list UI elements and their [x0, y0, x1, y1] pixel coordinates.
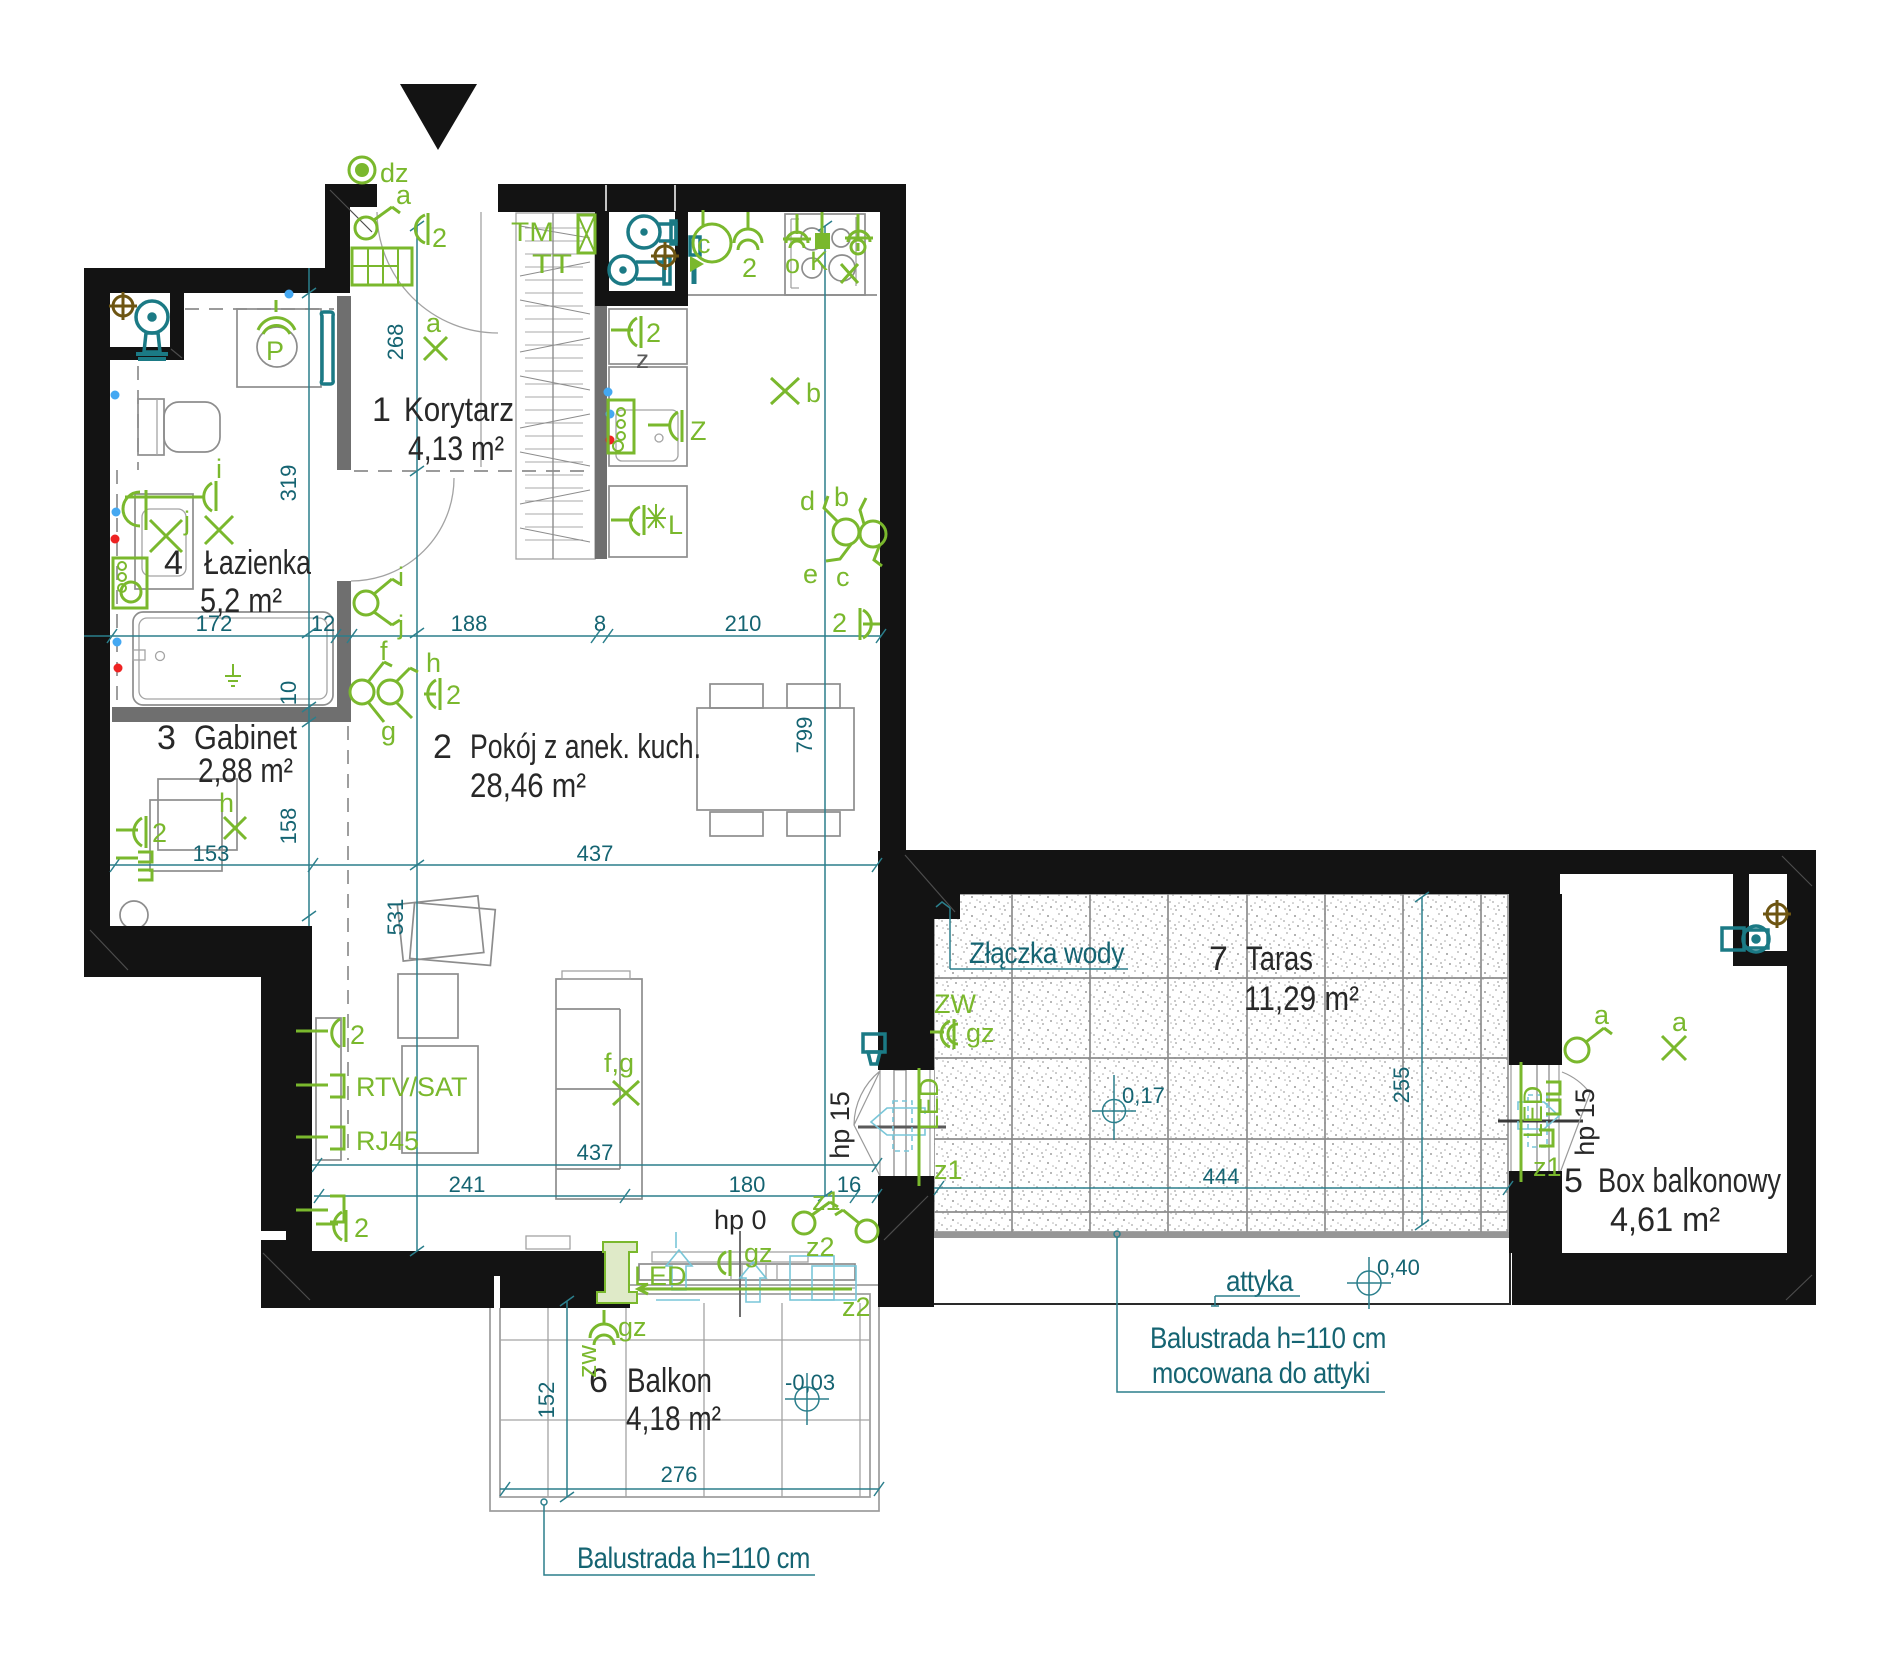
svg-text:j: j [397, 610, 404, 640]
svg-text:2: 2 [432, 223, 447, 253]
svg-text:f: f [380, 636, 388, 666]
svg-text:28,46 m²: 28,46 m² [470, 767, 586, 805]
svg-text:2: 2 [742, 253, 757, 283]
svg-text:Taras: Taras [1246, 940, 1313, 978]
svg-text:h: h [219, 788, 234, 818]
svg-text:L: L [668, 510, 683, 540]
svg-text:RJ45: RJ45 [356, 1126, 419, 1156]
svg-text:hp 15: hp 15 [1570, 1088, 1600, 1156]
svg-text:153: 153 [193, 841, 230, 866]
svg-text:gz: gz [744, 1238, 773, 1268]
svg-text:c: c [836, 562, 850, 592]
svg-text:12: 12 [311, 611, 335, 636]
svg-text:zw: zw [572, 1345, 602, 1379]
svg-text:210: 210 [725, 611, 762, 636]
svg-text:180: 180 [729, 1172, 766, 1197]
svg-text:Łazienka: Łazienka [204, 544, 311, 582]
svg-text:Balustrada h=110 cm: Balustrada h=110 cm [1150, 1322, 1386, 1355]
svg-text:P: P [266, 336, 284, 366]
svg-text:o: o [785, 249, 800, 279]
svg-text:z1: z1 [812, 1186, 841, 1216]
svg-text:c: c [697, 229, 711, 259]
svg-text:z1: z1 [934, 1155, 963, 1185]
svg-text:437: 437 [577, 1140, 614, 1165]
svg-text:j: j [183, 506, 190, 536]
svg-text:4,18 m²: 4,18 m² [626, 1400, 721, 1438]
svg-text:K: K [810, 246, 828, 276]
svg-text:799: 799 [792, 717, 817, 754]
svg-text:2: 2 [832, 608, 847, 638]
svg-text:a: a [1594, 1000, 1610, 1030]
svg-text:Złączka wody: Złączka wody [969, 937, 1124, 970]
svg-text:2: 2 [152, 818, 167, 848]
svg-text:2: 2 [350, 1020, 365, 1050]
svg-text:152: 152 [534, 1382, 559, 1419]
svg-text:a: a [426, 308, 442, 338]
svg-text:mocowana do attyki: mocowana do attyki [1152, 1357, 1370, 1390]
svg-text:Box balkonowy: Box balkonowy [1598, 1162, 1781, 1200]
svg-text:4,13 m²: 4,13 m² [408, 430, 504, 468]
svg-text:241: 241 [449, 1172, 486, 1197]
svg-text:3: 3 [157, 719, 176, 757]
svg-text:0,17: 0,17 [1122, 1083, 1165, 1108]
svg-text:531: 531 [383, 899, 408, 936]
svg-text:a: a [1672, 1007, 1688, 1037]
svg-text:z: z [636, 344, 649, 374]
svg-text:Balustrada h=110 cm: Balustrada h=110 cm [577, 1542, 810, 1575]
svg-text:-0,03: -0,03 [785, 1370, 835, 1395]
svg-text:2: 2 [446, 680, 461, 710]
svg-text:319: 319 [276, 465, 301, 502]
svg-text:2: 2 [433, 728, 452, 766]
svg-text:Korytarz: Korytarz [404, 391, 514, 429]
svg-text:1: 1 [372, 391, 391, 429]
svg-text:b: b [806, 378, 821, 408]
svg-text:f,g: f,g [604, 1048, 634, 1078]
svg-text:437: 437 [577, 841, 614, 866]
svg-text:4,61 m²: 4,61 m² [1610, 1201, 1720, 1239]
svg-text:e: e [803, 559, 818, 589]
svg-text:gz: gz [618, 1312, 647, 1342]
svg-text:hp 15: hp 15 [825, 1091, 855, 1159]
svg-text:ZW: ZW [934, 989, 976, 1019]
svg-text:Balkon: Balkon [627, 1362, 712, 1400]
svg-text:b: b [834, 482, 849, 512]
svg-text:i: i [398, 562, 404, 592]
svg-text:d: d [800, 486, 815, 516]
svg-text:5,2 m²: 5,2 m² [200, 582, 282, 620]
svg-text:8: 8 [594, 611, 606, 636]
svg-text:2: 2 [354, 1213, 369, 1243]
svg-text:2,88 m²: 2,88 m² [198, 752, 293, 790]
svg-text:5: 5 [1564, 1162, 1583, 1200]
svg-text:TM: TM [511, 217, 554, 247]
svg-text:g: g [381, 716, 396, 746]
svg-text:LED: LED [914, 1078, 944, 1131]
svg-text:gz: gz [966, 1018, 995, 1048]
svg-text:z2: z2 [806, 1232, 835, 1262]
svg-text:Pokój z anek. kuch.: Pokój z anek. kuch. [470, 728, 701, 766]
svg-text:276: 276 [661, 1462, 698, 1487]
svg-text:10: 10 [276, 681, 301, 705]
svg-text:Z: Z [690, 416, 707, 446]
svg-text:z2: z2 [842, 1292, 871, 1322]
svg-text:attyka: attyka [1226, 1265, 1294, 1298]
svg-text:i: i [216, 454, 222, 484]
svg-text:RTV/SAT: RTV/SAT [356, 1072, 468, 1102]
svg-text:444: 444 [1203, 1164, 1240, 1189]
svg-text:158: 158 [276, 808, 301, 845]
svg-text:11,29 m²: 11,29 m² [1244, 980, 1359, 1018]
svg-text:h: h [426, 648, 441, 678]
svg-text:188: 188 [451, 611, 488, 636]
svg-text:hp 0: hp 0 [714, 1205, 767, 1235]
svg-text:255: 255 [1389, 1067, 1414, 1104]
svg-text:TT: TT [532, 249, 572, 279]
svg-text:268: 268 [383, 324, 408, 361]
svg-text:z1: z1 [1533, 1152, 1562, 1182]
svg-text:0,40: 0,40 [1377, 1255, 1420, 1280]
svg-text:7: 7 [1209, 940, 1228, 978]
svg-text:a: a [396, 180, 412, 210]
